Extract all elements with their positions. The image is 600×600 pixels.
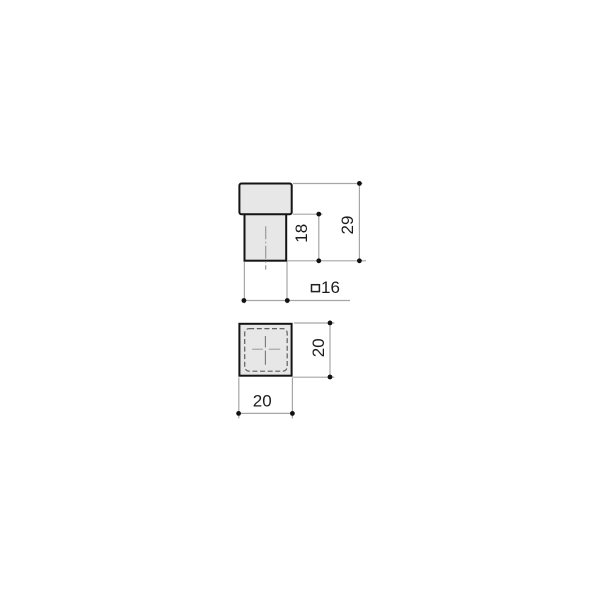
svg-text:18: 18: [292, 224, 311, 243]
svg-text:20: 20: [253, 392, 272, 411]
svg-text:16: 16: [321, 278, 340, 297]
svg-text:20: 20: [309, 338, 328, 357]
svg-text:29: 29: [338, 216, 357, 235]
